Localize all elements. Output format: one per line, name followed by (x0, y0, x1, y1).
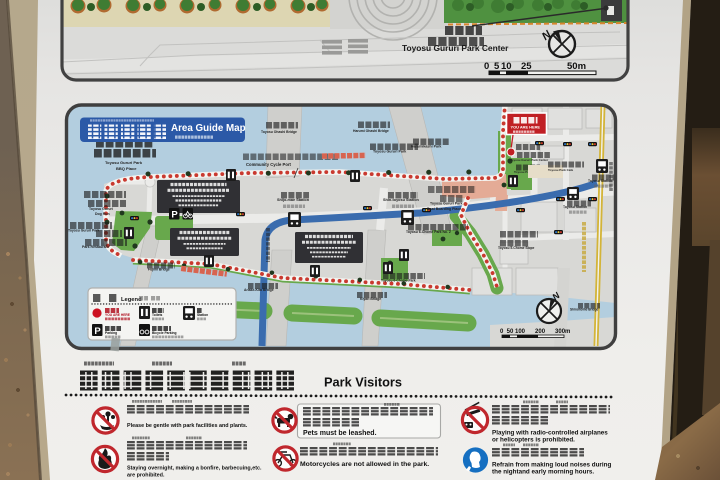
svg-text:Park Restaurant: Park Restaurant (82, 245, 110, 249)
svg-text:Harumi Ohashi Bridge: Harumi Ohashi Bridge (353, 129, 389, 133)
svg-text:Toyosu Station: Toyosu Station (588, 179, 612, 183)
svg-text:Playing with radio-controlled: Playing with radio-controlled airplanes (492, 430, 608, 437)
svg-text:Fujimi Bridge: Fujimi Bridge (148, 268, 170, 272)
svg-text:are prohibited.: are prohibited. (127, 473, 165, 479)
svg-text:Toyosu Gururi Park: Toyosu Gururi Park (373, 150, 406, 154)
svg-text:10: 10 (501, 61, 512, 72)
svg-text:Legend: Legend (121, 297, 142, 303)
svg-text:Toyosu Park Cafe: Toyosu Park Cafe (548, 168, 573, 172)
svg-text:0: 0 (484, 61, 489, 72)
svg-text:50m: 50m (567, 61, 586, 72)
svg-text:Toyosu Gururi Park: Toyosu Gururi Park (430, 202, 462, 206)
svg-text:Toyosu Gururi Park Center: Toyosu Gururi Park Center (402, 43, 509, 53)
svg-text:Toyosu Gururi Park: Toyosu Gururi Park (105, 160, 143, 165)
svg-text:Toyosu Gururi Park Center: Toyosu Gururi Park Center (510, 158, 549, 162)
svg-text:Toyosu Gururi: Toyosu Gururi (89, 207, 113, 211)
svg-text:Please be gentle with park fac: Please be gentle with park facilities an… (127, 423, 248, 429)
svg-text:Shinonome Bridge: Shinonome Bridge (570, 308, 599, 312)
svg-text:BBQ Place: BBQ Place (116, 166, 137, 171)
svg-text:the nightand early morning hou: the nightand early morning hours. (492, 469, 594, 476)
svg-text:Toyosu 5-Chome Slope: Toyosu 5-Chome Slope (498, 246, 535, 250)
svg-text:YOU ARE HERE: YOU ARE HERE (105, 313, 131, 317)
svg-text:25: 25 (521, 61, 532, 72)
svg-text:Motorcycles are not allowed in: Motorcycles are not allowed in the park. (300, 461, 429, 468)
svg-text:Park Visitors: Park Visitors (324, 375, 402, 390)
svg-text:Shin-toyosu Station: Shin-toyosu Station (383, 198, 420, 202)
svg-text:P: P (94, 326, 101, 337)
svg-text:Pets must be leashed.: Pets must be leashed. (303, 430, 377, 437)
svg-text:Toyosu Gururi Park: Toyosu Gururi Park (68, 229, 100, 233)
svg-text:Refrain from making loud noise: Refrain from making loud noises during (492, 462, 611, 469)
svg-text:Toilets: Toilets (152, 313, 163, 317)
svg-text:YOU ARE HERE: YOU ARE HERE (511, 125, 541, 130)
svg-text:Bicycle Parking: Bicycle Parking (152, 331, 177, 335)
svg-text:Community Cycle Port: Community Cycle Port (246, 162, 292, 167)
svg-text:5: 5 (494, 61, 500, 72)
svg-text:Dog Run: Dog Run (95, 212, 110, 216)
svg-text:Area Guide Map: Area Guide Map (171, 123, 246, 134)
svg-text:P: P (171, 210, 178, 221)
svg-text:0 50 100 200 300m: 0 50 100 200 300m (500, 329, 570, 335)
svg-text:Kiyari Bridge: Kiyari Bridge (360, 297, 381, 301)
svg-text:Toyosu Ohashi Bridge: Toyosu Ohashi Bridge (261, 130, 297, 134)
svg-text:Boat Boarding Place: Boat Boarding Place (427, 207, 461, 211)
svg-text:or helicopters is prohibited.: or helicopters is prohibited. (492, 437, 575, 444)
svg-text:Toyosu 6-Chome Park: Toyosu 6-Chome Park (381, 279, 416, 283)
svg-text:Toyosu 6-Chome Park No. 2: Toyosu 6-Chome Park No. 2 (406, 230, 451, 234)
svg-text:Parking: Parking (105, 331, 117, 335)
svg-text:Toyosu Station: Toyosu Station (563, 205, 587, 209)
svg-text:Ariake-Kita Bridge: Ariake-Kita Bridge (244, 288, 274, 292)
svg-text:Station: Station (197, 313, 208, 317)
svg-text:Staying overnight, making a bo: Staying overnight, making a bonfire, bar… (127, 466, 262, 472)
svg-text:Shijo-mae Station: Shijo-mae Station (277, 198, 310, 202)
